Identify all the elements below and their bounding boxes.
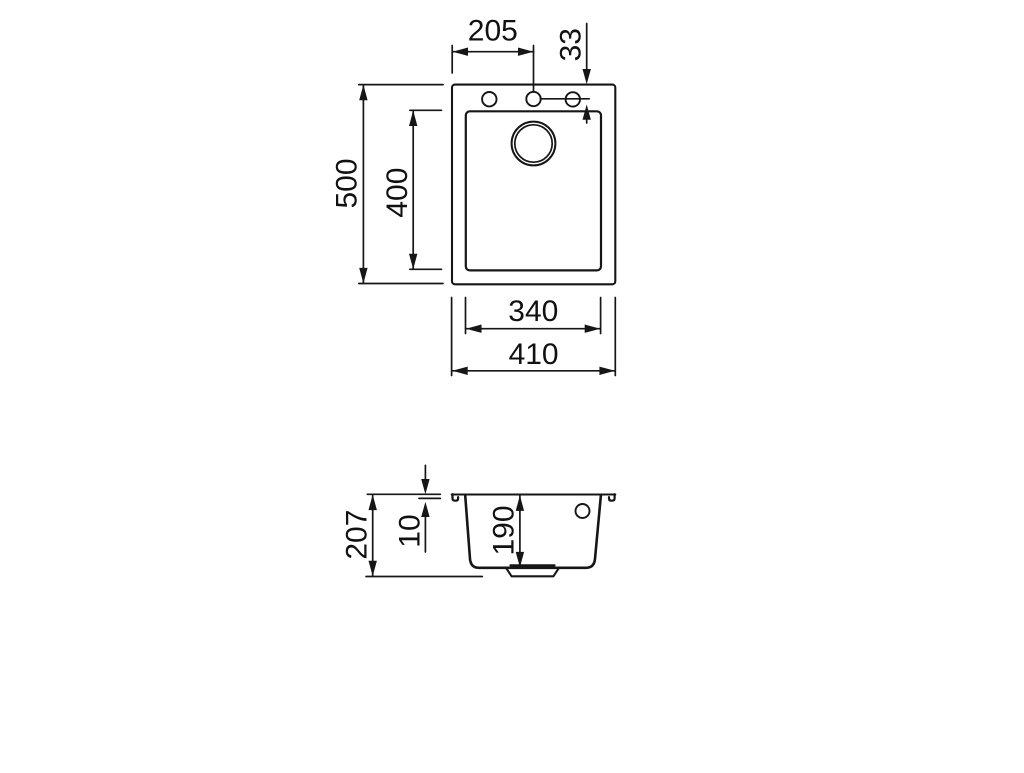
- svg-text:500: 500: [330, 158, 363, 208]
- svg-text:340: 340: [508, 295, 558, 328]
- svg-text:400: 400: [381, 168, 414, 218]
- svg-text:33: 33: [555, 28, 588, 61]
- svg-text:205: 205: [468, 15, 518, 48]
- svg-text:207: 207: [341, 510, 374, 560]
- svg-text:10: 10: [394, 514, 427, 547]
- svg-text:410: 410: [509, 338, 559, 371]
- svg-text:190: 190: [488, 505, 521, 555]
